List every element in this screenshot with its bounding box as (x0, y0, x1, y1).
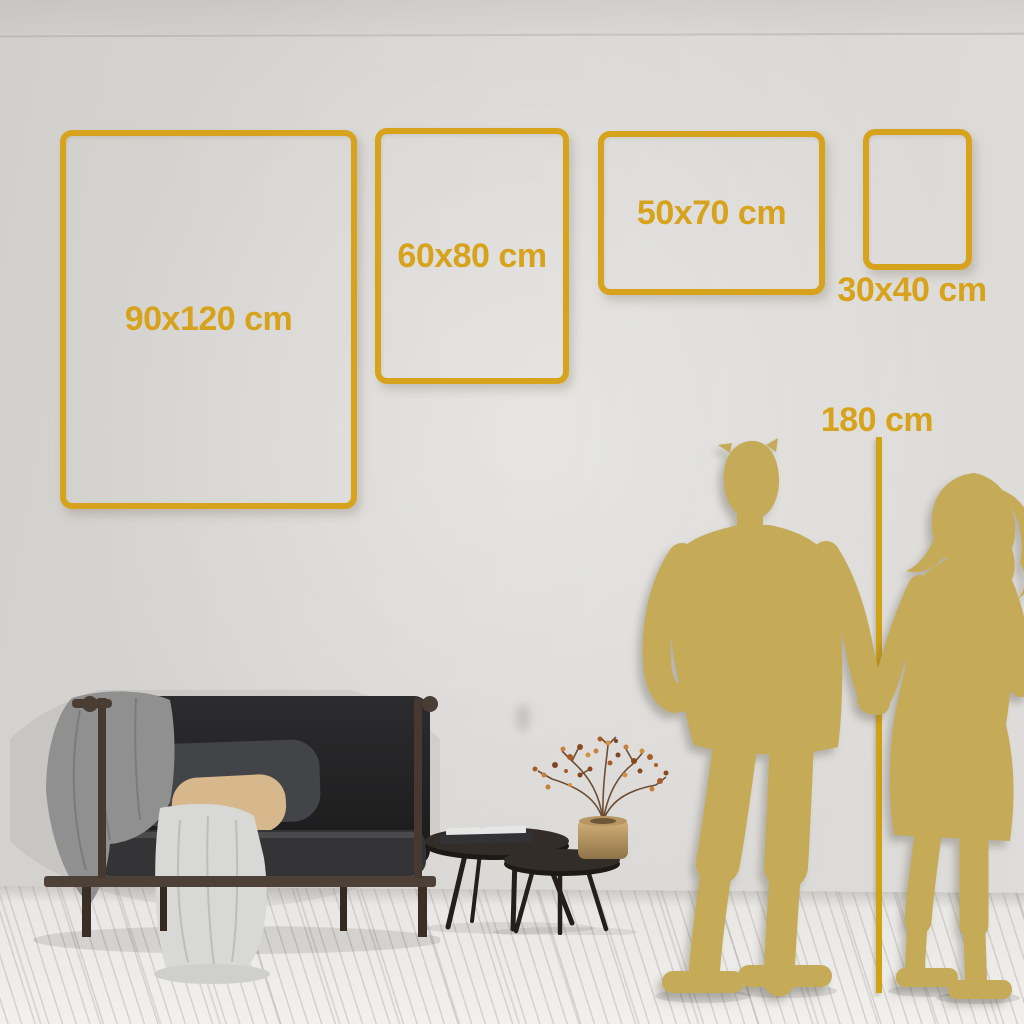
wood-leg-front-left (82, 887, 91, 937)
wood-leg-back-right (340, 887, 347, 931)
wood-arm-knob-right (422, 696, 438, 712)
couple-silhouette (640, 435, 1024, 1010)
wall-smudge (516, 704, 530, 732)
size-frame-50x70: 50x70 cm (598, 131, 825, 295)
size-frame-30x40 (863, 129, 972, 270)
man-left-calf (704, 860, 718, 977)
man-left-hand (665, 682, 695, 712)
size-label-90x120: 90x120 cm (125, 300, 293, 339)
seat-cushion-highlight (102, 832, 418, 838)
wood-arm-knob-left (82, 696, 98, 712)
man-right-foot (738, 965, 832, 987)
books-stack (440, 826, 532, 845)
man-silhouette (657, 438, 887, 993)
wood-arm-post-left (98, 698, 106, 878)
white-throw-blanket (155, 804, 266, 981)
woman-silhouette (866, 473, 1024, 999)
man-right-thigh (786, 740, 792, 867)
woman-left-calf (915, 919, 918, 975)
size-label-60x80: 60x80 cm (397, 237, 546, 276)
size-frame-90x120: 90x120 cm (60, 130, 357, 509)
woman-right-calf (974, 923, 976, 985)
gold-vase-mouth (590, 818, 616, 824)
man-left-foot (662, 971, 744, 993)
woman-left-hand (866, 691, 890, 715)
nesting-coffee-tables (420, 735, 670, 935)
woman-left-thigh (918, 835, 928, 921)
man-hair-tuft-left (718, 443, 732, 453)
woman-right-foot (948, 980, 1012, 999)
size-label-50x70: 50x70 cm (637, 194, 786, 233)
size-label-30x40: 30x40 cm (826, 271, 998, 310)
sofa (10, 690, 440, 1024)
woman-left-foot (896, 968, 958, 987)
man-left-thigh (718, 740, 736, 863)
white-throw-crumple (154, 964, 270, 984)
size-frame-60x80: 60x80 cm (375, 128, 569, 384)
man-right-calf (779, 865, 786, 981)
poster-size-guide-image: 90x120 cm 60x80 cm 50x70 cm 30x40 cm 180… (0, 0, 1024, 1024)
wood-leg-back-left (160, 887, 167, 931)
